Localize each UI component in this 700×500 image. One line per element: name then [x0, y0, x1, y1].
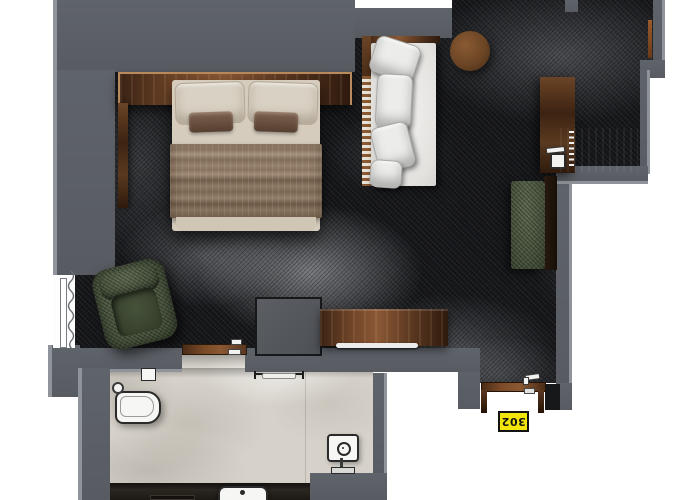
entry-door-handle-out [525, 389, 534, 393]
shower-head-dot [342, 447, 344, 449]
floor-plan: 302 [0, 0, 700, 500]
green-bench [511, 181, 545, 269]
shower-head [327, 434, 359, 462]
bed-accent-pillow-left [189, 111, 234, 133]
bathroom-door-handle-out [229, 350, 240, 354]
toilet-seat-line [120, 396, 154, 417]
bed-foot-sheet [176, 217, 316, 231]
floor-rug-stripes [560, 128, 638, 172]
wall-right-mid [640, 70, 650, 174]
towel-rail-bracket-left [254, 371, 256, 379]
console-sideboard [320, 309, 448, 346]
daybed-pillow-4 [369, 159, 403, 189]
bench-back-panel [544, 176, 557, 270]
shower-handle [332, 468, 354, 473]
wall-entry-right [558, 383, 572, 410]
wall-window-sill [48, 345, 80, 397]
wall-left [53, 70, 115, 275]
bed-side-rail [118, 103, 128, 208]
entry-door-jamb-left [481, 390, 487, 413]
curtain-icon [63, 271, 79, 349]
room-number-label: 302 [498, 411, 529, 432]
daybed-pillow-2 [375, 73, 414, 129]
wall-top-stub [565, 0, 578, 12]
bathroom-door-handle-in [232, 340, 241, 344]
bed-accent-pillow-right [254, 111, 299, 133]
vanity-fixture [150, 495, 195, 500]
entry-door-handle-stem [524, 378, 528, 384]
wall-right-lower [556, 184, 572, 384]
toilet [115, 391, 161, 424]
sink-tap [240, 490, 245, 495]
storage-box [255, 297, 322, 356]
wall-top-left-slab [53, 0, 355, 72]
wall-bathroom-bottom-block [310, 473, 387, 500]
wall-trim [648, 20, 652, 58]
bed-blanket [170, 144, 322, 218]
sink [218, 486, 268, 500]
wall-right-top [653, 0, 665, 66]
daybed-sofa [362, 36, 440, 186]
toilet-roll-holder [112, 382, 124, 394]
double-bed [172, 80, 320, 231]
vanity-counter [110, 483, 310, 500]
wall-bathroom-right [373, 373, 387, 477]
towel-rail [254, 373, 304, 381]
console-tray [336, 343, 418, 348]
towel [262, 373, 296, 379]
wall-above-daybed [355, 8, 452, 38]
entry-dark-block [545, 384, 560, 410]
towel-rail-bracket-right [302, 371, 304, 379]
shower-head-ring [337, 442, 351, 456]
entry-door [481, 382, 546, 392]
tile-joint [305, 368, 306, 483]
flush-plate [141, 368, 156, 381]
wall-bathroom-left [78, 368, 110, 500]
bathroom-door-shadow [182, 353, 245, 367]
round-side-table [450, 31, 490, 71]
entry-door-jamb-right [538, 390, 544, 413]
